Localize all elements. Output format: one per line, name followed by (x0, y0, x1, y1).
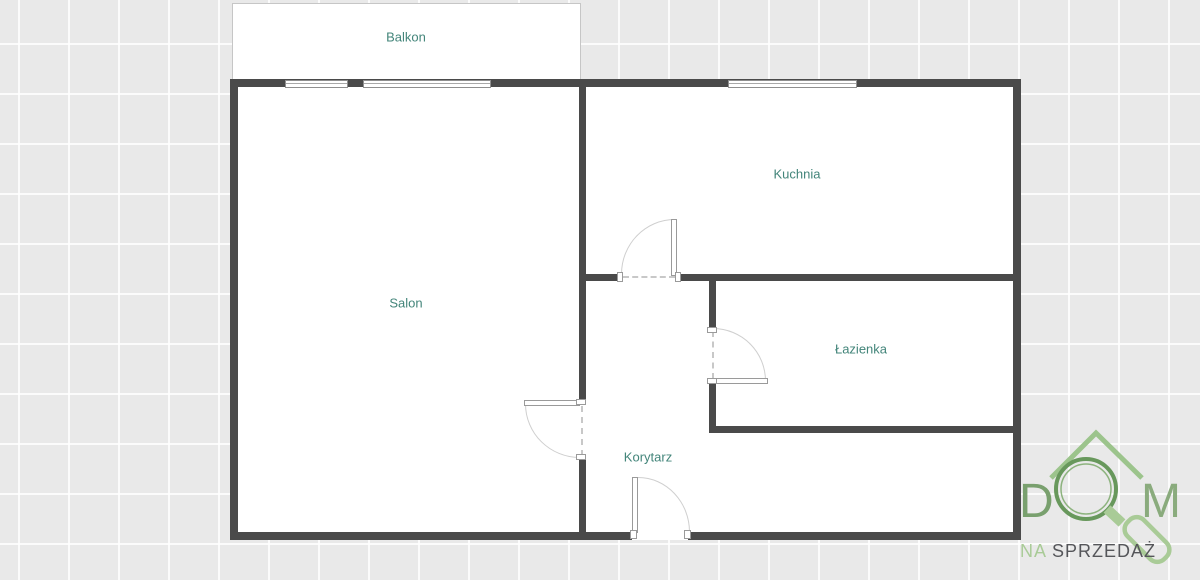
magnifier-inner-ring-icon (1061, 464, 1111, 514)
bathroom-door-leaf (711, 378, 768, 384)
wall-bathroom-bottom (709, 426, 1013, 433)
door-jamb (707, 378, 717, 384)
wall-kitchen-bottom-right (677, 274, 1013, 281)
door-jamb (576, 399, 586, 405)
apartment-outer-walls (230, 79, 1021, 540)
salon-door-leaf (524, 400, 580, 406)
window-pane-line (729, 83, 856, 84)
wall-bathroom-left-upper (709, 281, 716, 330)
room-label-balkon: Balkon (386, 30, 426, 45)
wall-salon-divider-lower (579, 458, 586, 532)
wall-kitchen-bottom-left (586, 274, 621, 281)
floorplan-canvas: Balkon Salon Kuchnia Łazienka Korytarz D… (0, 0, 1200, 580)
wall-salon-divider-upper (579, 87, 586, 403)
room-label-lazienka: Łazienka (835, 342, 887, 357)
logo-roof-icon (1051, 433, 1142, 478)
door-jamb (707, 327, 717, 333)
door-jamb (684, 530, 691, 539)
salon-door-threshold (581, 406, 583, 456)
room-label-kuchnia: Kuchnia (774, 167, 821, 182)
logo-letter-d: D (1019, 475, 1054, 528)
window-pane-line (364, 83, 490, 84)
door-jamb (617, 272, 623, 282)
logo-tagline: NASPRZEDAŻ (1020, 541, 1156, 562)
room-label-salon: Salon (389, 296, 422, 311)
bathroom-door-threshold (712, 331, 714, 379)
logo-letter-m: M (1141, 475, 1181, 528)
kitchen-door-threshold (623, 276, 675, 278)
entrance-opening (632, 531, 688, 540)
entrance-door-leaf (632, 477, 638, 533)
window (285, 80, 348, 88)
door-jamb (675, 272, 681, 282)
kitchen-door-leaf (671, 219, 677, 276)
logo-tagline-sprzedaz: SPRZEDAŻ (1052, 541, 1156, 561)
magnifier-handle-connector (1107, 509, 1122, 523)
logo-tagline-na: NA (1020, 541, 1047, 561)
door-jamb (630, 530, 637, 539)
door-jamb (576, 454, 586, 460)
window-pane-line (286, 83, 347, 84)
window (363, 80, 491, 88)
room-label-korytarz: Korytarz (624, 450, 672, 465)
window (728, 80, 857, 88)
